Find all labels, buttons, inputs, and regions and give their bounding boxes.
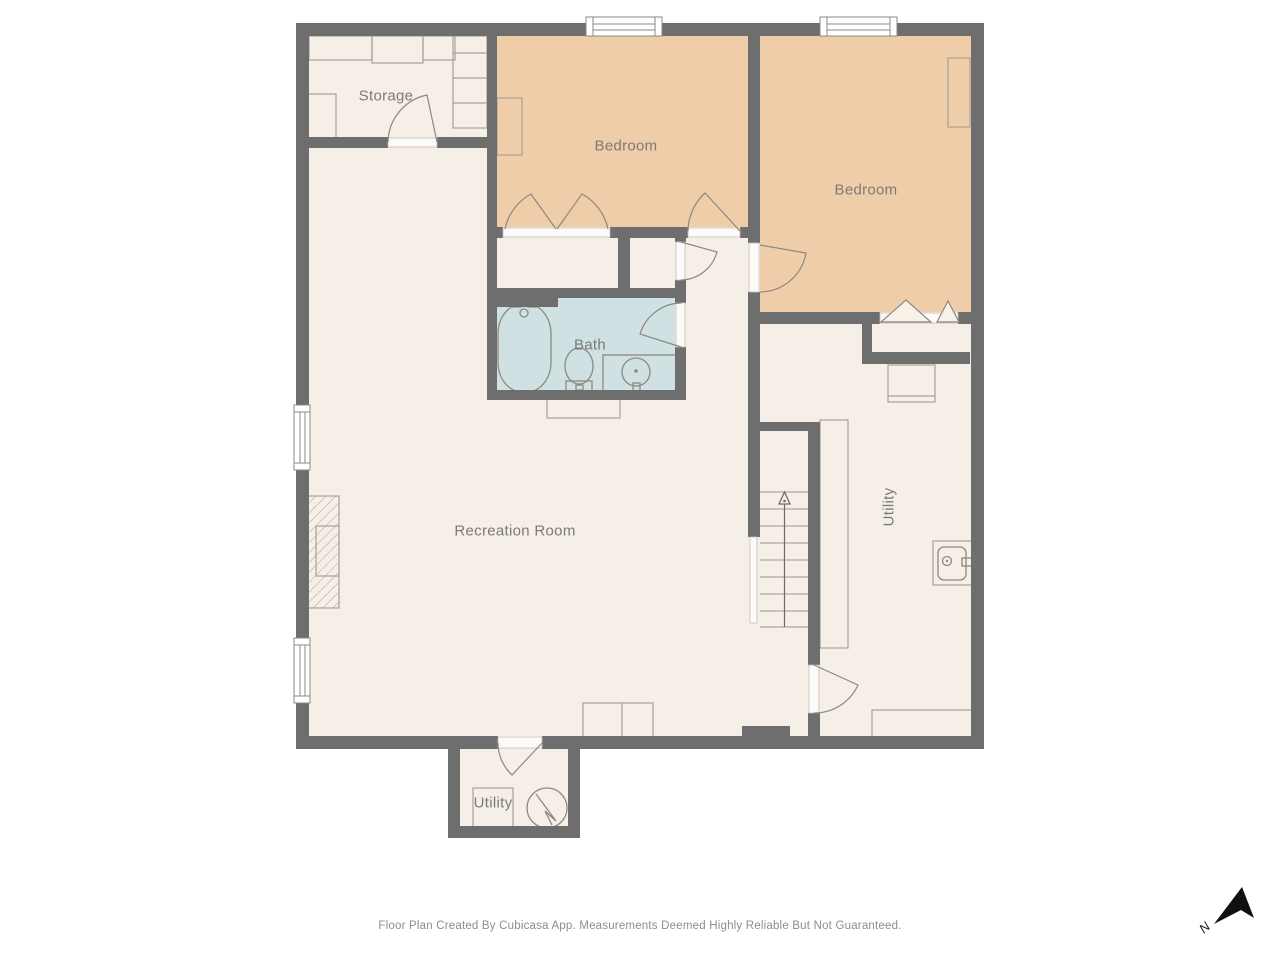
bedroom-1-window xyxy=(586,17,662,36)
floors xyxy=(309,36,971,826)
room-label-utility-annex: Utility xyxy=(474,795,513,812)
room-label-recreation: Recreation Room xyxy=(454,523,575,540)
room-label-bath: Bath xyxy=(574,337,606,354)
room-label-bedroom-1: Bedroom xyxy=(595,138,658,155)
bedroom-2-window xyxy=(820,17,897,36)
fireplace xyxy=(306,496,339,608)
room-label-storage: Storage xyxy=(359,88,414,105)
room-label-utility-main: Utility xyxy=(881,488,898,527)
disclaimer-text: Floor Plan Created By Cubicasa App. Meas… xyxy=(0,920,1280,932)
floor-plan-canvas: N Storage Bedroom Bedroom Bath Recreatio… xyxy=(0,0,1280,960)
floor-bedroom-2 xyxy=(760,36,971,312)
room-label-bedroom-2: Bedroom xyxy=(835,182,898,199)
recreation-window-upper xyxy=(294,405,310,470)
recreation-window-lower xyxy=(294,638,310,703)
